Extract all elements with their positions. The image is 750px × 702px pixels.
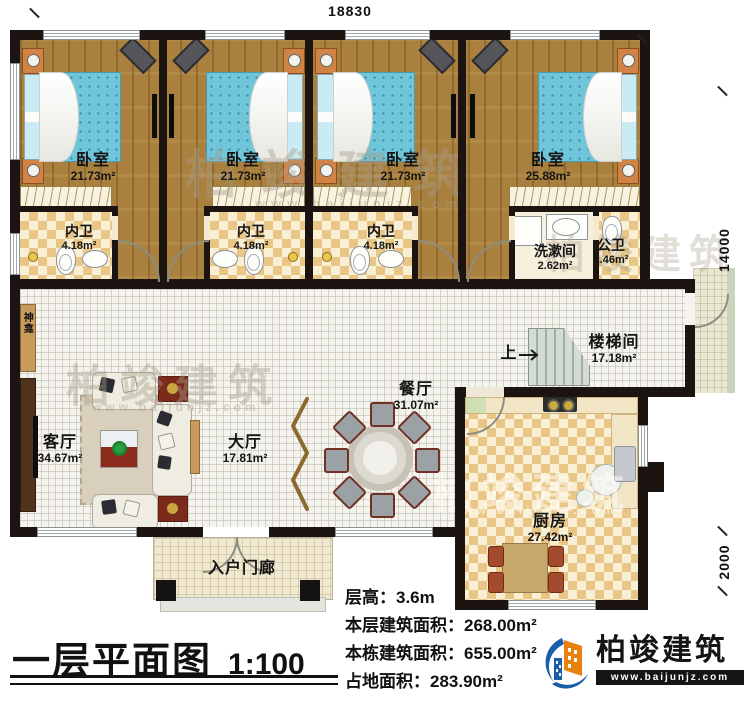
porch-column (300, 580, 320, 601)
shrine-label: 神龛 (21, 312, 32, 334)
bed-headboard (317, 74, 334, 160)
side-porch-edge (727, 268, 735, 393)
stat-row: 层高：3.6m (345, 583, 537, 611)
lamp (322, 252, 332, 262)
company-name: 柏竣建筑 (596, 636, 744, 666)
kitchen-chair (548, 572, 564, 593)
wall (210, 206, 305, 212)
wall (159, 40, 167, 279)
cushion (157, 455, 172, 470)
lamp (288, 252, 298, 262)
room-label-kitchen: 厨房27.42m² (507, 513, 593, 544)
wardrobe-1 (20, 186, 112, 208)
side-table-medallion (167, 503, 178, 514)
cushion (101, 499, 117, 515)
room-label-ensuite3: 内卫4.18m² (336, 224, 426, 252)
table-plant (112, 441, 127, 456)
bed-blanket (333, 72, 373, 162)
wall-tv (152, 94, 157, 138)
up-arrow (518, 348, 544, 362)
room-label-living: 客厅34.67m² (17, 434, 103, 465)
bed-headboard (286, 74, 303, 160)
title-underline (10, 675, 338, 685)
nightstand (315, 48, 337, 74)
wardrobe-4 (509, 186, 640, 208)
porch-column (156, 580, 176, 601)
door-opening (509, 216, 515, 240)
dining-chair (415, 448, 440, 473)
entry-door-opening (203, 527, 269, 537)
room-label-public-wc: 公卫2.46m² (582, 238, 640, 266)
bed-blanket (39, 72, 79, 162)
wall (509, 206, 640, 212)
window (510, 30, 600, 40)
stove-burner (562, 399, 575, 412)
dimension-top: 18830 (305, 3, 395, 19)
floor-plan-canvas: 神龛 (0, 0, 750, 702)
room-label-bedroom3: 卧室21.73m² (358, 152, 448, 183)
bed-blanket (249, 72, 288, 162)
window (10, 63, 20, 160)
window (37, 527, 137, 537)
room-label-bedroom1: 卧室21.73m² (48, 152, 138, 183)
wall (458, 40, 466, 279)
window (205, 30, 285, 40)
kitchen-door-opening (466, 387, 504, 397)
stair-up-label: 上 (498, 345, 520, 363)
kitchen-sink (614, 446, 636, 482)
dimension-right-upper: 14000 (716, 220, 732, 280)
bed-blanket (583, 72, 622, 162)
room-label-ensuite2: 内卫4.18m² (206, 224, 296, 252)
cushion (121, 376, 138, 393)
room-label-hall: 大厅17.81m² (202, 434, 288, 465)
window (345, 30, 430, 40)
room-label-stairwell: 楼梯间17.18m² (564, 334, 664, 365)
dimension-tick (717, 586, 728, 597)
room-label-bedroom4: 卧室25.88m² (503, 152, 593, 183)
wall-tv (451, 94, 456, 138)
nightstand (617, 48, 639, 74)
dining-chair (324, 448, 349, 473)
dimension-right-lower: 2000 (716, 537, 732, 587)
stat-row: 占地面积：283.90m² (345, 667, 537, 695)
room-label-bedroom2: 卧室21.73m² (198, 152, 288, 183)
company-logo-icon (540, 636, 590, 692)
window (10, 233, 20, 275)
room-label-entry-porch: 入户门廊 (187, 560, 297, 578)
wall-tv (470, 94, 475, 138)
company-website: www.baijunjz.com (596, 670, 744, 685)
chevron-screen (286, 396, 312, 512)
sink (82, 250, 108, 268)
console-table (190, 420, 200, 474)
dimension-tick (29, 8, 40, 19)
cushion (99, 377, 116, 394)
wall (455, 387, 465, 610)
dining-chair (370, 493, 395, 518)
wardrobe-3 (313, 186, 412, 208)
bed-headboard (620, 74, 637, 160)
side-door-opening (685, 293, 695, 325)
nightstand (283, 48, 305, 74)
stat-row: 本栋建筑面积：655.00m² (345, 639, 537, 667)
company-logo-block: 柏竣建筑 www.baijunjz.com (540, 636, 744, 692)
sink (378, 250, 404, 268)
dimension-tick (717, 86, 728, 97)
wall-tv (169, 94, 174, 138)
stat-row: 本层建筑面积：268.00m² (345, 611, 537, 639)
chimney (648, 462, 664, 492)
wall (640, 30, 650, 289)
wall (10, 279, 695, 289)
wardrobe-2 (212, 186, 305, 208)
stove-burner (547, 399, 560, 412)
window (43, 30, 140, 40)
window (335, 527, 433, 537)
window (638, 425, 648, 467)
sink (212, 250, 238, 268)
wall (20, 206, 112, 212)
wall (305, 40, 313, 279)
kitchen-chair (488, 546, 504, 567)
side-table-medallion (167, 383, 178, 394)
room-label-ensuite1: 内卫4.18m² (34, 224, 124, 252)
washing-machine (514, 216, 542, 246)
building-stats: 层高：3.6m 本层建筑面积：268.00m² 本栋建筑面积：655.00m² … (345, 583, 537, 695)
kitchen-chair (548, 546, 564, 567)
wall (313, 206, 412, 212)
basin (576, 489, 594, 507)
dimension-tick (717, 526, 728, 537)
lamp (28, 252, 38, 262)
nightstand (22, 48, 44, 74)
room-label-dining: 餐厅31.07m² (373, 381, 459, 412)
sink (552, 218, 580, 236)
